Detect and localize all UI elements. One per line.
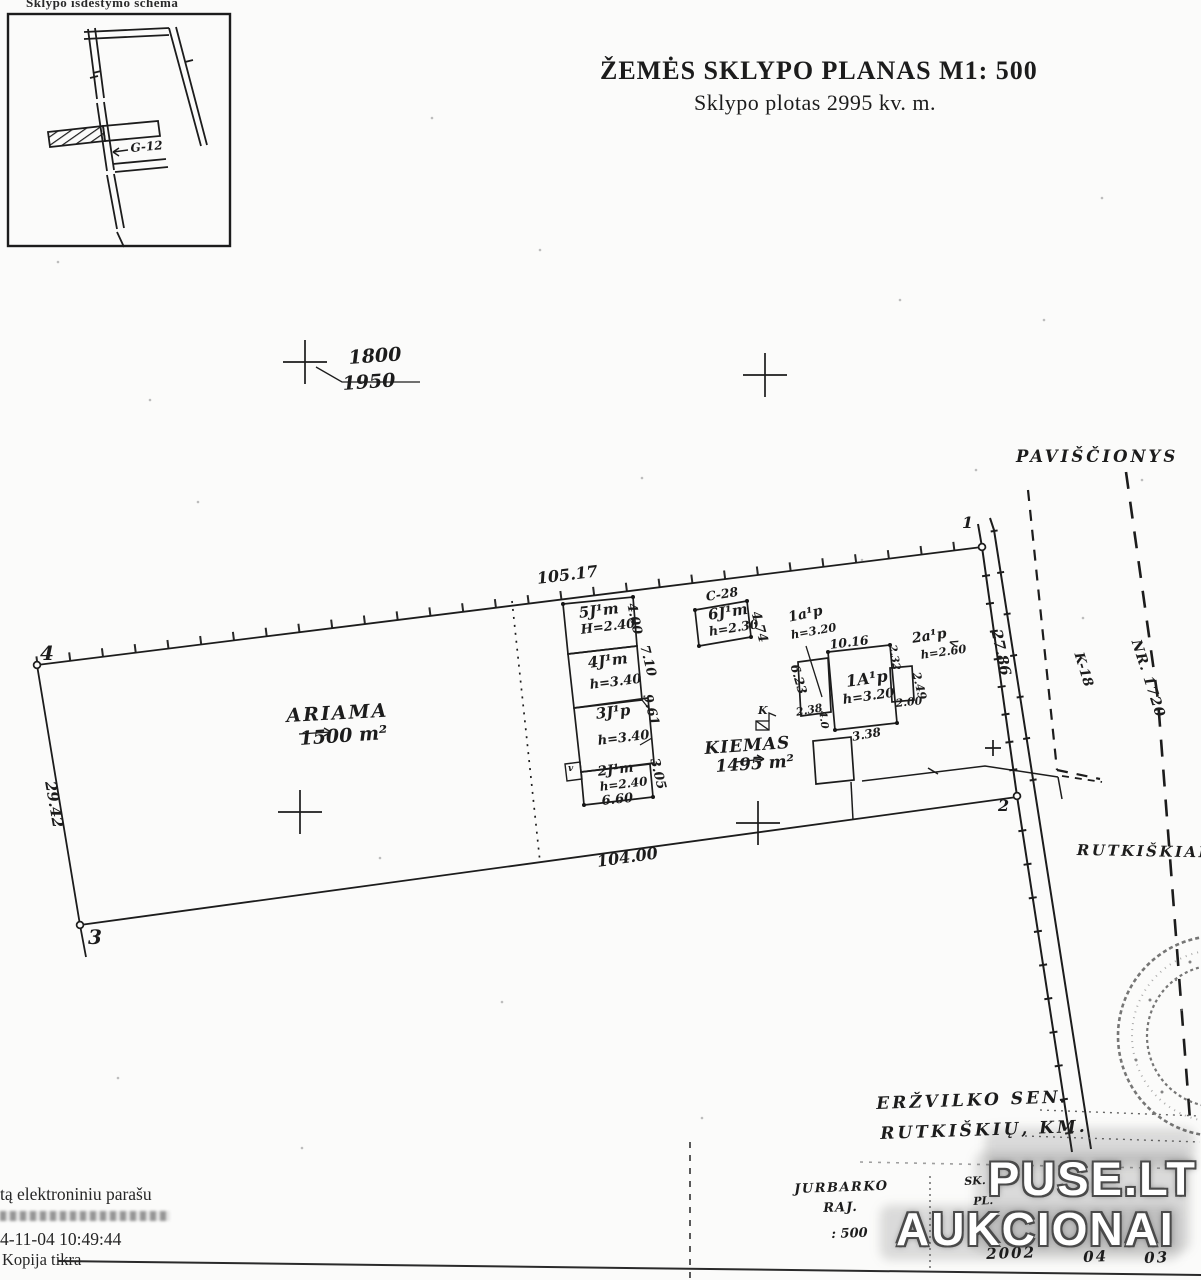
plan-subtitle: Sklypo plotas 2995 kv. m. bbox=[630, 92, 1000, 114]
porch bbox=[813, 737, 854, 784]
note-scale: : 500 bbox=[831, 1227, 868, 1241]
note-district: JURBARKO bbox=[794, 1180, 889, 1196]
vertex-point-1 bbox=[979, 544, 986, 551]
dim-col-width: 6.60 bbox=[601, 792, 634, 808]
inset-caption: Sklypo išdėstymo schema bbox=[26, 0, 178, 9]
note-raj: RAJ. bbox=[823, 1201, 858, 1215]
grid-value-top: 1800 bbox=[348, 345, 402, 368]
land-use-divider bbox=[512, 601, 540, 862]
vertex-label-3: 3 bbox=[88, 927, 102, 947]
note-sk: SK. bbox=[964, 1175, 986, 1187]
vertex-label-4: 4 bbox=[40, 643, 54, 663]
building3-code: 3J¹p bbox=[595, 703, 631, 722]
signature-text: tą elektroniniu parašu bbox=[0, 1186, 152, 1204]
road-nr-1720 bbox=[1126, 472, 1190, 1120]
inset-road-label: G-12 bbox=[130, 139, 163, 154]
copy-true-label: Kopija tikra bbox=[2, 1252, 81, 1269]
well-letter: K bbox=[758, 705, 768, 716]
scanned-land-plan-page: Sklypo išdėstymo schema G-12 ŽEMĖS SKLYP… bbox=[0, 0, 1201, 1280]
road-dashed-near bbox=[1028, 490, 1057, 770]
vertex-point-3 bbox=[77, 922, 84, 929]
bottom-rule-line bbox=[58, 1261, 1201, 1275]
g12-arrow bbox=[113, 148, 128, 156]
dim-40: 4.0 bbox=[817, 710, 830, 730]
vertex-label-2: 2 bbox=[998, 798, 1009, 814]
vertex-point-2 bbox=[1014, 793, 1021, 800]
watermark-line1: PUSE.LT bbox=[988, 1155, 1197, 1202]
place-rutkiskiai: RUTKIŠKIAI bbox=[1077, 843, 1201, 860]
place-paviscionys: PAVIŠČIONYS bbox=[1016, 449, 1178, 466]
grid-value-bottom: 1950 bbox=[342, 371, 396, 394]
inset-map bbox=[8, 14, 230, 247]
vertex-label-1: 1 bbox=[962, 515, 973, 531]
plan-title: ŽEMĖS SKLYPO PLANAS M1: 500 bbox=[600, 58, 1030, 84]
watermark-line2: AUKCIONAI bbox=[896, 1206, 1175, 1252]
grid-crosses bbox=[278, 340, 1001, 845]
hatched-building-strip bbox=[48, 126, 105, 147]
stamp-speckles bbox=[1135, 961, 1192, 1094]
porch-mark: v bbox=[568, 765, 573, 774]
signature-timestamp: 4-11-04 10:49:44 bbox=[0, 1231, 121, 1249]
illegible-signature-row bbox=[0, 1211, 170, 1221]
fences bbox=[851, 766, 1102, 820]
parcel-boundary bbox=[34, 518, 1091, 1152]
